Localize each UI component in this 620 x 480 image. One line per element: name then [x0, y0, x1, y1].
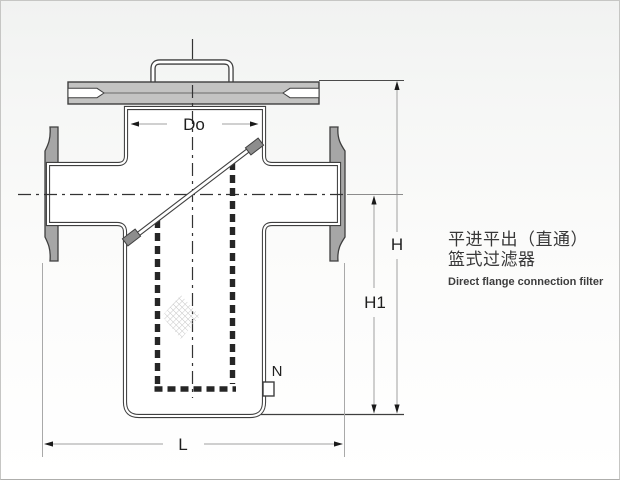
drain-port: [263, 382, 274, 396]
label-n: N: [272, 363, 283, 380]
label-do: Do: [183, 115, 205, 134]
label-l: L: [178, 435, 187, 454]
product-name-cn-line2: 篮式过滤器: [448, 250, 603, 270]
drawing-canvas: Do H H1 L: [0, 0, 620, 480]
cover-gasket-notch-left: [68, 88, 104, 97]
label-h1: H1: [364, 293, 386, 312]
cover-gasket-notch-right: [283, 88, 319, 97]
strainer-body: [48, 108, 339, 416]
product-title-block: 平进平出（直通） 篮式过滤器 Direct flange connection …: [448, 230, 603, 288]
product-name-en: Direct flange connection filter: [448, 276, 603, 288]
product-name-cn-line1: 平进平出（直通）: [448, 230, 603, 250]
cover-flange: [68, 82, 319, 104]
dimension-h1: H1: [347, 195, 403, 414]
label-h: H: [391, 235, 403, 254]
